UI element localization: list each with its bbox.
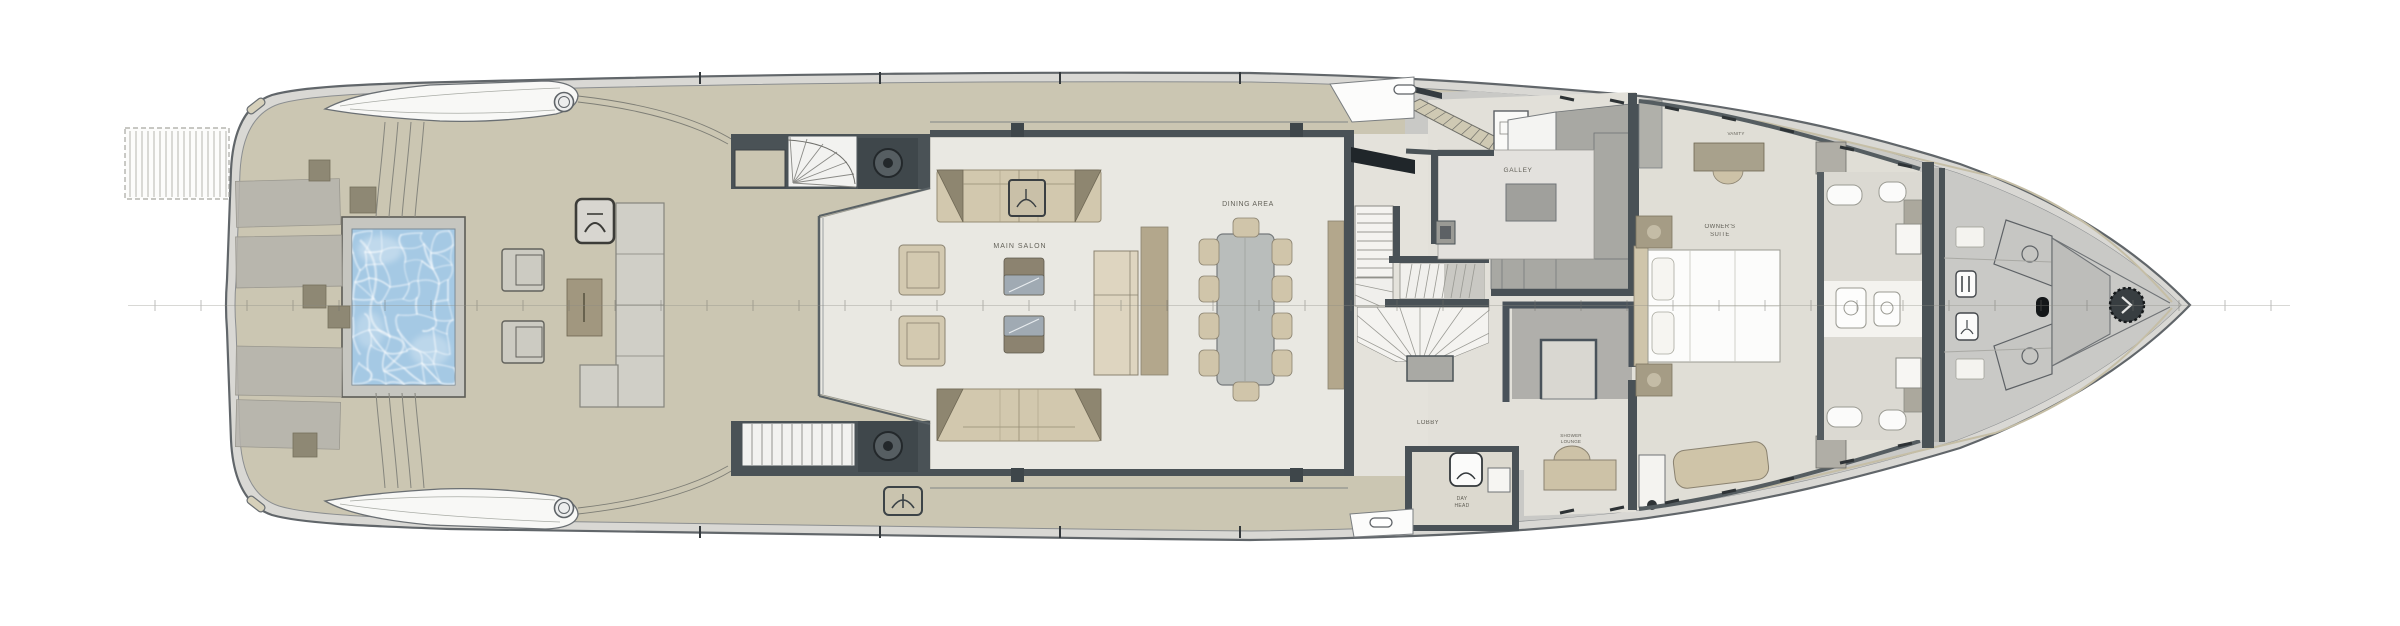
- svg-text:DINING AREA: DINING AREA: [1222, 201, 1274, 208]
- svg-text:GALLEY: GALLEY: [1504, 167, 1533, 174]
- svg-text:SHOWER: SHOWER: [1560, 433, 1582, 438]
- svg-text:VANITY: VANITY: [1727, 131, 1744, 136]
- svg-text:LOUNGE: LOUNGE: [1561, 439, 1581, 444]
- svg-text:MAIN SALON: MAIN SALON: [993, 243, 1046, 250]
- svg-text:LOBBY: LOBBY: [1417, 420, 1439, 426]
- svg-text:DAY: DAY: [1457, 496, 1468, 502]
- svg-text:HEAD: HEAD: [1454, 503, 1469, 509]
- svg-text:OWNER'S: OWNER'S: [1705, 224, 1736, 230]
- svg-text:SUITE: SUITE: [1710, 232, 1730, 238]
